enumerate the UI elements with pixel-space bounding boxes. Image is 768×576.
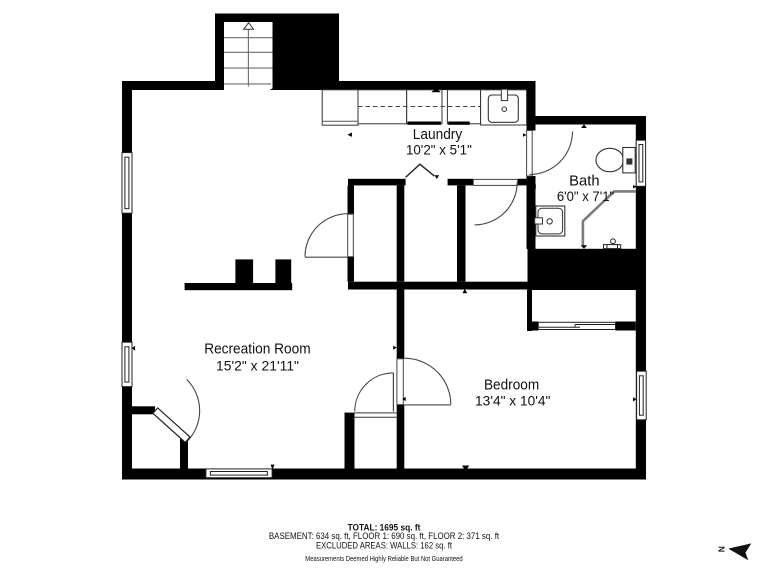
- svg-text:Recreation Room: Recreation Room: [204, 342, 310, 358]
- svg-text:Measurements Deemed Highly Rel: Measurements Deemed Highly Reliable But …: [305, 556, 462, 563]
- svg-text:13'4" x 10'4": 13'4" x 10'4": [475, 393, 550, 409]
- svg-text:6'0" x 7'1": 6'0" x 7'1": [557, 188, 614, 204]
- svg-text:10'2" x 5'1": 10'2" x 5'1": [406, 142, 472, 158]
- svg-text:EXCLUDED AREAS: WALLS: 162 sq.: EXCLUDED AREAS: WALLS: 162 sq. ft: [316, 541, 452, 552]
- svg-text:Bath: Bath: [569, 173, 599, 189]
- svg-text:Bedroom: Bedroom: [484, 378, 539, 394]
- svg-text:N: N: [716, 546, 726, 552]
- svg-text:15'2" x 21'11": 15'2" x 21'11": [216, 357, 299, 373]
- svg-text:Laundry: Laundry: [413, 127, 463, 143]
